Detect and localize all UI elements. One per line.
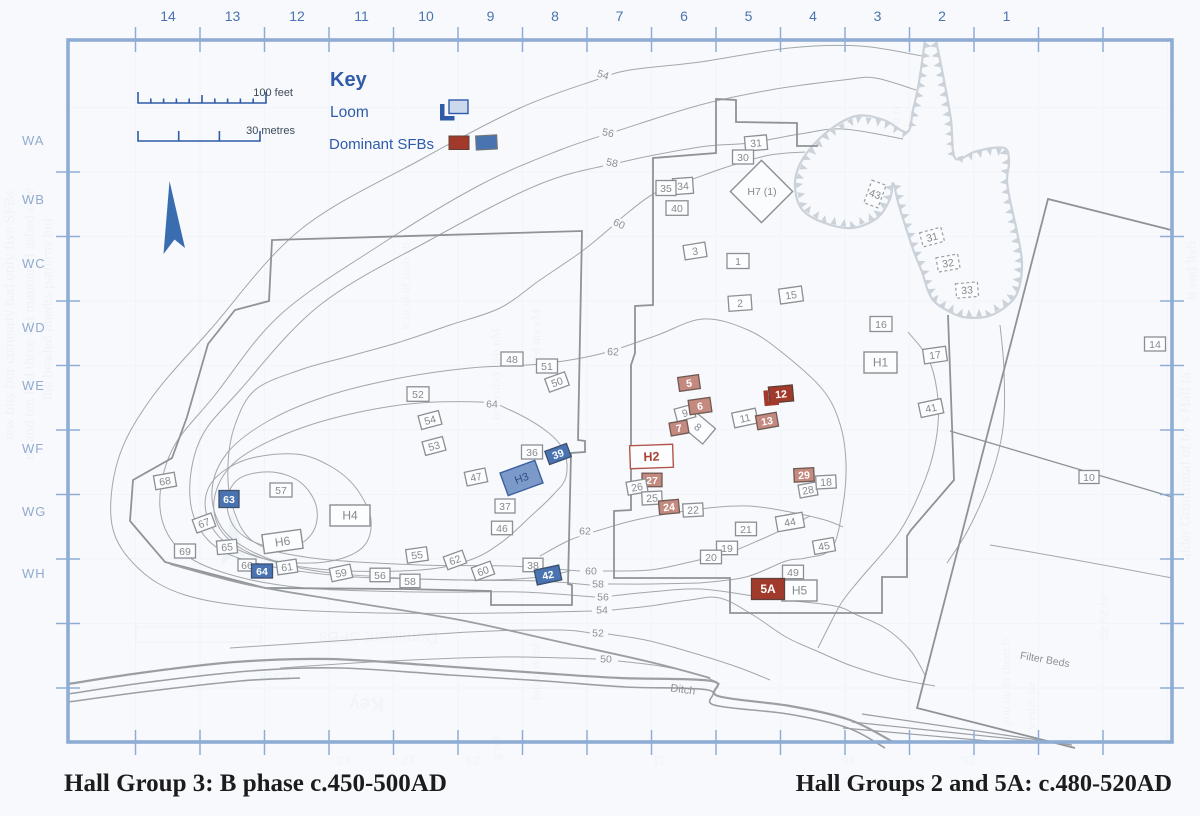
svg-text:21: 21	[740, 524, 752, 536]
svg-text:H5: H5	[792, 584, 808, 598]
svg-text:20: 20	[705, 552, 717, 564]
svg-text:19: 19	[721, 543, 733, 555]
svg-text:55: 55	[410, 549, 423, 563]
svg-text:Key: Key	[330, 69, 368, 91]
svg-text:13: 13	[760, 415, 774, 429]
svg-text:WE: WE	[22, 378, 45, 393]
svg-text:WC: WC	[22, 256, 46, 271]
svg-text:Hall Group 3: B phase c.450-50: Hall Group 3: B phase c.450-500AD	[64, 770, 447, 797]
svg-text:H1: H1	[873, 356, 889, 370]
svg-text:WF: WF	[22, 441, 44, 456]
svg-text:16: 16	[875, 319, 887, 331]
svg-text:17: 17	[928, 349, 941, 363]
svg-text:36: 36	[526, 447, 538, 459]
svg-text:WD: WD	[22, 320, 46, 335]
svg-text:34: 34	[677, 180, 690, 193]
svg-text:64: 64	[256, 566, 268, 578]
svg-text:6: 6	[680, 8, 688, 24]
svg-text:8: 8	[551, 8, 559, 24]
svg-text:49: 49	[787, 567, 799, 579]
svg-text:tew bits fior ctsnearly had on: tew bits fior ctsnearly had only five SF…	[2, 190, 18, 440]
svg-text:54: 54	[596, 604, 608, 616]
svg-text:28: 28	[801, 484, 815, 498]
svg-text:5: 5	[745, 8, 753, 24]
svg-text:wetlm ne: wetlm ne	[1023, 682, 1038, 730]
svg-text:23: 23	[467, 753, 481, 768]
svg-text:1: 1	[735, 256, 741, 268]
svg-text:Ditch: Ditch	[670, 682, 696, 697]
svg-text:2: 2	[737, 298, 744, 310]
svg-text:68: 68	[158, 475, 172, 489]
svg-text:H4: H4	[342, 509, 358, 523]
svg-text:51: 51	[541, 361, 553, 373]
svg-text:35: 35	[660, 183, 672, 195]
svg-text:H6: H6	[274, 534, 291, 550]
svg-text:63: 63	[223, 494, 235, 506]
svg-text:30: 30	[737, 152, 749, 164]
svg-text:11: 11	[653, 753, 667, 768]
svg-text:9: 9	[487, 8, 495, 24]
svg-text:14: 14	[1149, 339, 1161, 351]
svg-text:4: 4	[809, 8, 817, 24]
svg-text:12: 12	[289, 8, 305, 24]
svg-text:27: 27	[646, 475, 658, 487]
svg-text:69: 69	[179, 546, 191, 558]
svg-text:52: 52	[412, 389, 424, 401]
svg-text:WH: WH	[22, 566, 46, 581]
svg-text:45: 45	[817, 540, 831, 554]
svg-text:30 metres: 30 metres	[246, 125, 295, 137]
svg-text:the beaded nnedts patterns bnl: the beaded nnedts patterns bnl	[40, 218, 56, 400]
svg-text:g ml: g ml	[488, 736, 503, 760]
svg-text:64: 64	[486, 398, 498, 410]
svg-text:H2: H2	[643, 450, 660, 465]
svg-text:13: 13	[337, 753, 351, 768]
svg-text:Filter Beds: Filter Beds	[1019, 650, 1071, 671]
svg-text:44: 44	[783, 516, 797, 530]
svg-text:2: 2	[938, 8, 946, 24]
svg-text:61: 61	[280, 561, 293, 575]
svg-text:57: 57	[275, 485, 287, 497]
svg-text:10: 10	[1083, 472, 1095, 484]
svg-text:31: 31	[750, 137, 763, 150]
svg-text:37: 37	[499, 501, 511, 513]
svg-text:Dominant SFBs: Dominant SFBs	[329, 136, 434, 153]
svg-text:Key: Key	[349, 693, 384, 714]
svg-text:alder Groutmnal of by s Hall t: alder Groutmnal of by s Hall ta	[1178, 372, 1194, 560]
svg-text:5A: 5A	[760, 582, 776, 596]
svg-text:3: 3	[874, 8, 882, 24]
svg-text:WB: WB	[22, 192, 45, 207]
svg-text:50: 50	[600, 653, 612, 665]
svg-text:33: 33	[961, 284, 974, 297]
svg-text:Loom: Loom	[330, 104, 369, 121]
svg-text:60: 60	[585, 565, 597, 577]
svg-text:22: 22	[687, 504, 699, 517]
svg-text:100 feet: 100 feet	[253, 87, 293, 99]
svg-text:25: 25	[962, 753, 976, 768]
svg-text:13: 13	[225, 8, 241, 24]
svg-text:56: 56	[374, 570, 386, 582]
svg-text:12: 12	[402, 753, 416, 768]
svg-text:12: 12	[775, 388, 788, 401]
svg-text:Hall Groups 2 and 5A: c.480-52: Hall Groups 2 and 5A: c.480-520AD	[796, 770, 1172, 797]
svg-text:it ie nl of tsnb eb: it ie nl of tsnb eb	[398, 242, 413, 330]
svg-text:62: 62	[607, 346, 619, 359]
svg-text:18: 18	[820, 476, 832, 489]
svg-text:14: 14	[160, 8, 176, 24]
svg-text:ed nts eM: ed nts eM	[528, 308, 543, 360]
svg-text:58: 58	[404, 576, 416, 588]
svg-text:10: 10	[418, 8, 434, 24]
svg-text:it ead lteb: it ead lteb	[1184, 241, 1200, 300]
svg-text:56: 56	[597, 591, 609, 603]
svg-text:58: 58	[592, 578, 604, 590]
svg-text:15: 15	[784, 289, 797, 303]
svg-text:46: 46	[496, 523, 508, 535]
svg-text:H7 (1): H7 (1)	[747, 186, 776, 198]
svg-text:52: 52	[592, 627, 604, 639]
svg-text:WG: WG	[22, 504, 46, 519]
svg-text:29: 29	[798, 469, 810, 482]
svg-text:7: 7	[616, 8, 624, 24]
svg-text:Dominant SFBs: Dominant SFBs	[319, 628, 438, 647]
svg-text:62: 62	[579, 525, 591, 537]
svg-text:65: 65	[221, 541, 234, 554]
svg-text:32: 32	[941, 257, 955, 271]
svg-text:48: 48	[506, 354, 518, 366]
svg-text:WA: WA	[22, 133, 44, 148]
svg-text:of you de to them b: of you de to them b	[998, 639, 1013, 740]
svg-text:11: 11	[354, 8, 369, 24]
svg-text:16: 16	[842, 753, 856, 768]
svg-text:25: 25	[646, 492, 658, 505]
svg-text:40: 40	[671, 203, 683, 215]
svg-text:24: 24	[663, 501, 676, 514]
svg-text:1: 1	[1003, 8, 1011, 24]
